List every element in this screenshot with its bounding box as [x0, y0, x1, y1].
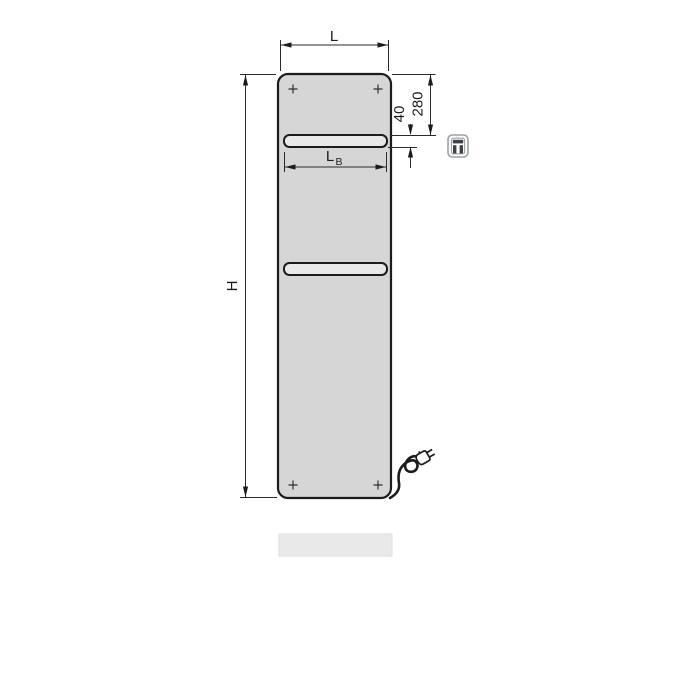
floor-shadow-strip: [279, 534, 392, 556]
arrowhead-down: [408, 125, 413, 136]
arrowhead-bottom: [428, 125, 433, 136]
dimension-label-LB: L: [326, 148, 334, 165]
dimension-label-H: H: [224, 281, 241, 292]
control-icon-display: [453, 140, 463, 144]
control-icon-right-bar: [460, 145, 463, 153]
plug-pin-top: [427, 449, 432, 452]
dimension-40: [388, 124, 417, 168]
arrowhead-right: [378, 42, 389, 47]
dimension-label-L: L: [330, 28, 338, 45]
arrowhead-top: [243, 75, 248, 86]
dimension-height-H: [240, 75, 277, 498]
towel-bar-top: [284, 135, 387, 147]
power-cable: [390, 456, 419, 498]
diagram-canvas: L H 280 40 L B: [0, 0, 700, 700]
radiator-panel-group: [278, 74, 391, 498]
plug-pin-bottom: [429, 454, 434, 457]
dimension-label-280: 280: [410, 91, 427, 116]
radiator-dimension-diagram: L H 280 40 L B: [0, 0, 700, 700]
arrowhead-up: [408, 147, 413, 158]
dimension-label-LB-subscript: B: [335, 156, 342, 168]
plug-in-control-unit-icon: [448, 135, 468, 157]
dimension-label-40: 40: [391, 106, 408, 123]
power-cable-group: [390, 445, 436, 498]
towel-bar-bottom: [284, 263, 387, 275]
arrowhead-top: [428, 75, 433, 86]
plug-earth-contact: [419, 452, 420, 454]
control-icon-left-bar: [453, 145, 456, 153]
arrowhead-left: [281, 42, 292, 47]
arrowhead-bottom: [243, 487, 248, 498]
